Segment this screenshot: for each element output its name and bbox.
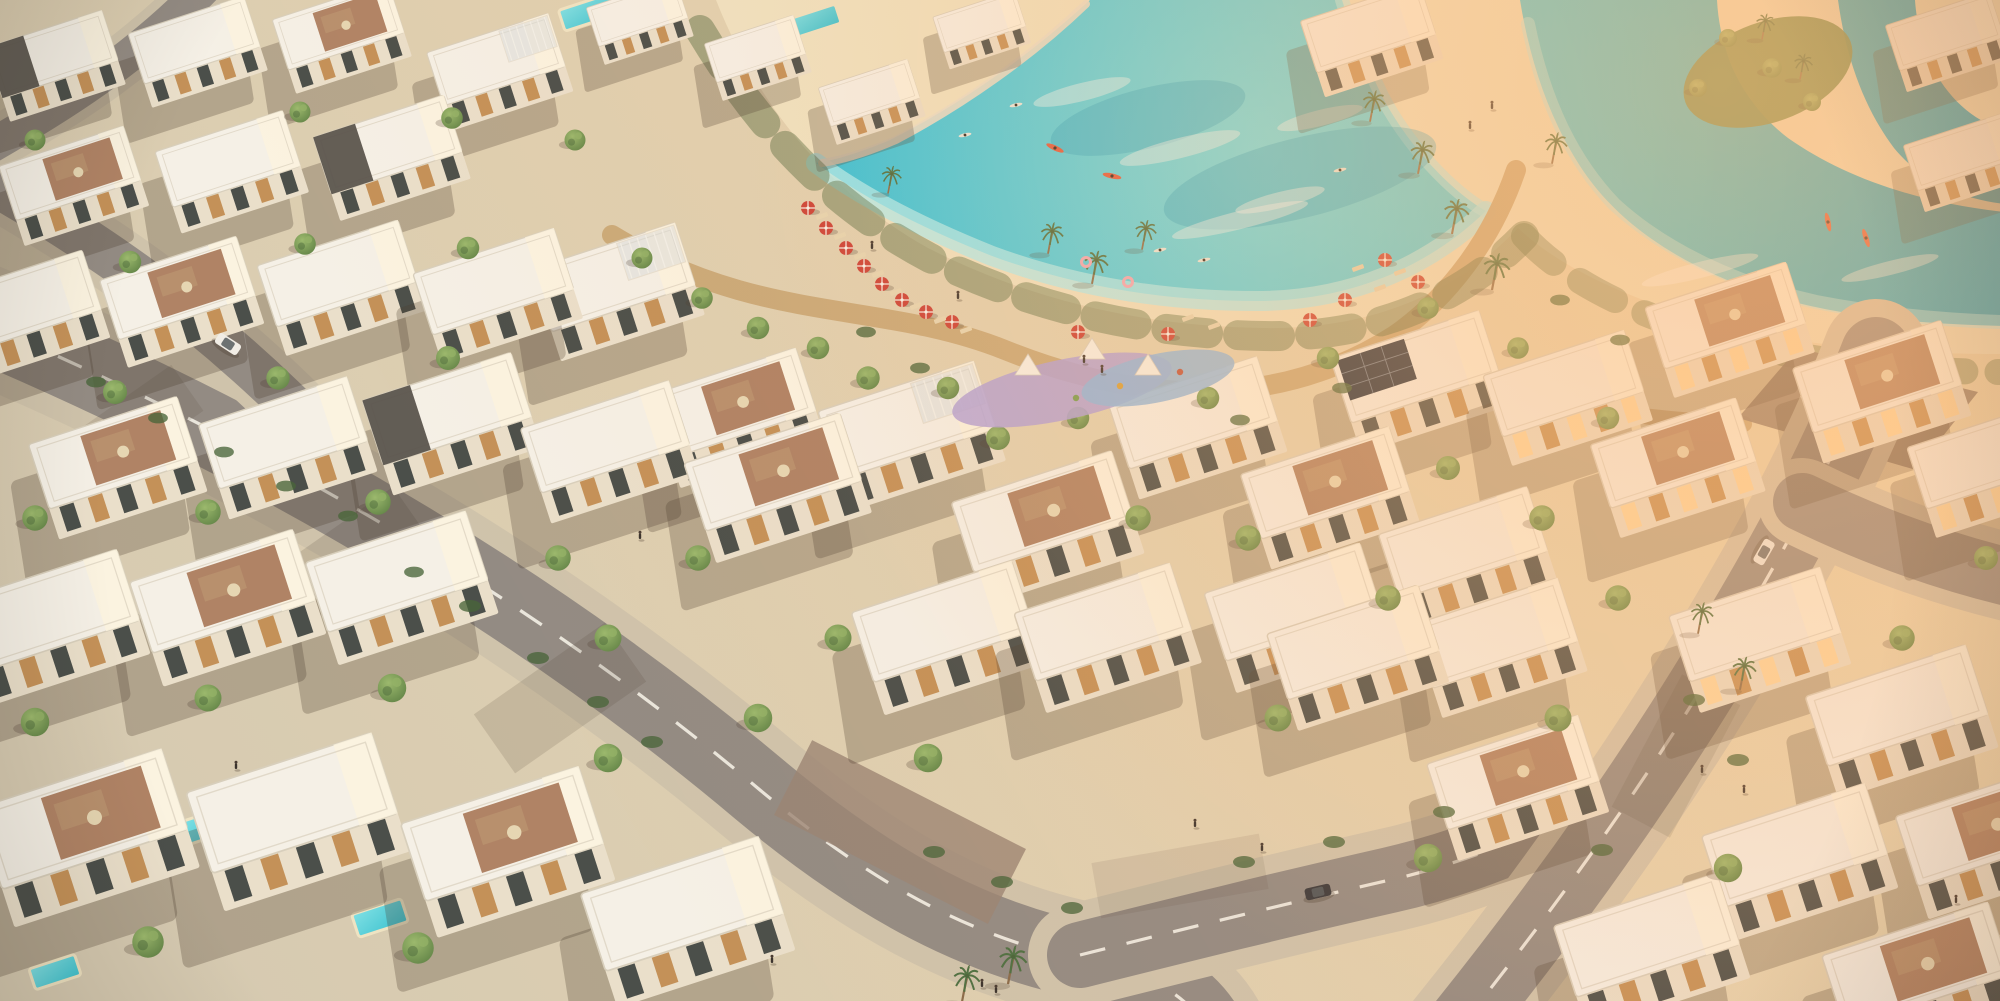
- aerial-render: [0, 0, 2000, 1001]
- lighting-layer: [0, 0, 2000, 1001]
- vignette: [0, 0, 2000, 1001]
- scene-svg: [0, 0, 2000, 1001]
